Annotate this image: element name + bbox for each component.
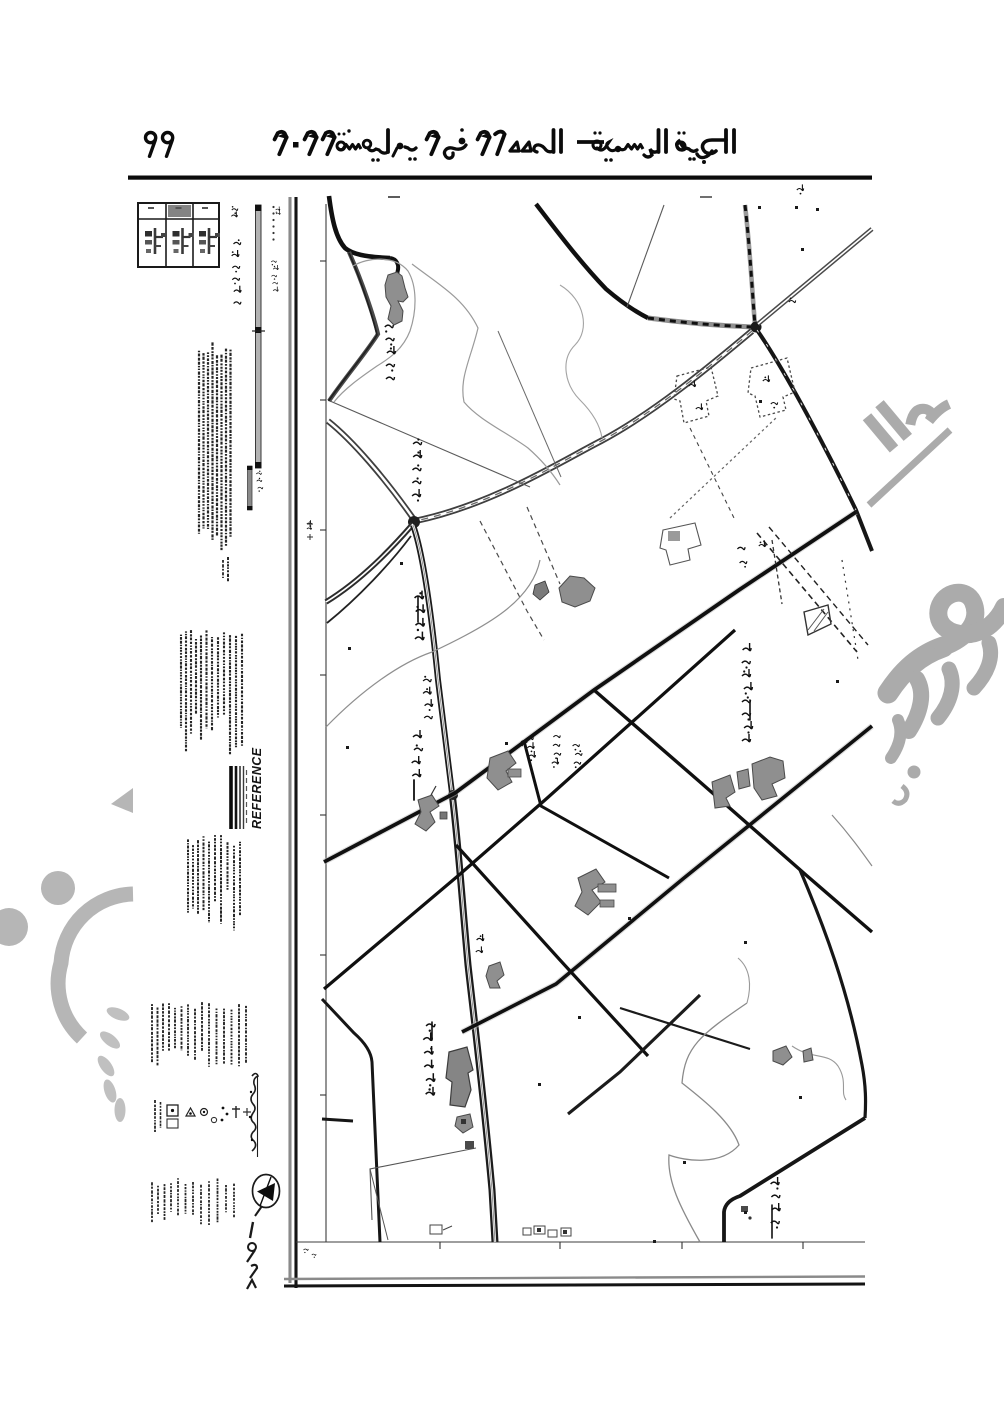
svg-text:REFERENCE: REFERENCE [250, 747, 264, 829]
